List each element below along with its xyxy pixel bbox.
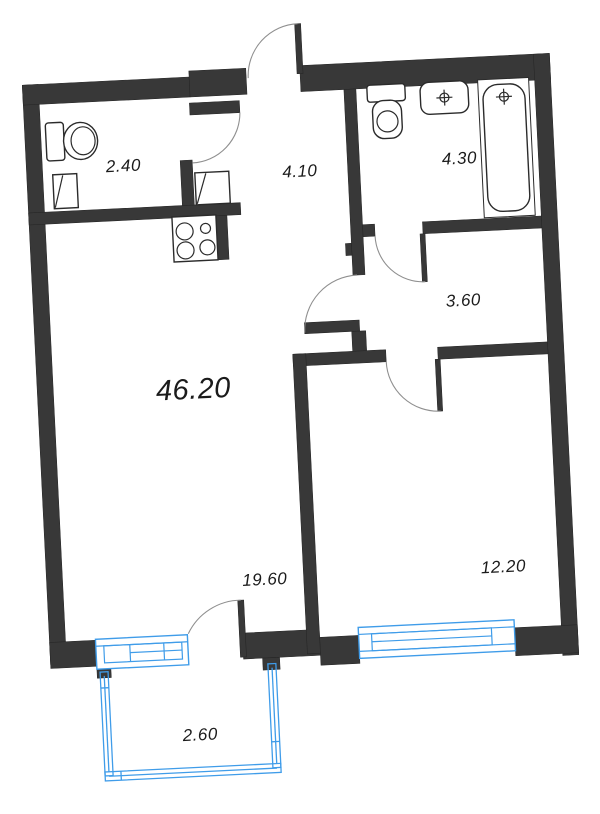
balcony-wall-right-inner bbox=[272, 668, 277, 764]
entrance-door-arc bbox=[246, 24, 300, 78]
area-label-balcony: 2.60 bbox=[182, 724, 218, 746]
area-label-corridor: 3.60 bbox=[445, 290, 481, 312]
entrance-door-leaf bbox=[295, 24, 303, 74]
wall-bedroom-divider bbox=[293, 354, 321, 654]
wall-corridor-stub bbox=[352, 331, 367, 352]
bathtub-inner bbox=[482, 83, 530, 212]
area-label-wc: 2.40 bbox=[105, 156, 141, 178]
floor-plan: 46.20 19.60 12.20 4.10 2.40 4.30 3.60 2.… bbox=[0, 0, 600, 814]
wc-door-leaf bbox=[189, 101, 240, 115]
door-leaves bbox=[186, 18, 454, 659]
bathroom-door-arc bbox=[375, 234, 425, 284]
balcony-door-arc bbox=[187, 600, 242, 634]
balcony-wall-bottom-inner bbox=[109, 768, 277, 776]
wall-bedroom-north-left bbox=[293, 350, 386, 367]
area-label-hallway: 4.10 bbox=[282, 161, 318, 183]
floor-plan-drawing bbox=[0, 0, 600, 814]
wall-bathroom-stub bbox=[363, 224, 376, 237]
area-label-total: 46.20 bbox=[155, 372, 232, 409]
wall-divider-nub bbox=[345, 243, 352, 255]
wall-bottom-bedroom-left bbox=[320, 635, 360, 665]
wall-bottom-bedroom-right bbox=[514, 625, 578, 656]
sink-drain-cross-v bbox=[444, 90, 445, 106]
wc-door-arc bbox=[190, 113, 242, 163]
toilet-bathroom bbox=[367, 84, 408, 140]
area-label-bedroom: 12.20 bbox=[480, 556, 526, 578]
bedroom-window-unit bbox=[358, 620, 515, 659]
wall-wc-east-stub bbox=[180, 160, 194, 206]
wall-bedroom-north-right bbox=[438, 342, 548, 359]
wall-top-mid bbox=[189, 68, 247, 97]
area-label-bathroom: 4.30 bbox=[441, 148, 477, 170]
vent-box-hall-outline bbox=[195, 171, 231, 205]
toilet-bathroom-tank bbox=[367, 84, 406, 103]
living-door-leaf bbox=[304, 320, 359, 334]
balcony-wall-left-inner bbox=[104, 676, 109, 772]
stove bbox=[172, 215, 218, 262]
balcony-walls bbox=[100, 663, 281, 780]
vent-box-hall bbox=[195, 171, 231, 205]
bedroom-door-leaf bbox=[435, 359, 443, 411]
wall-left bbox=[22, 84, 66, 664]
bedroom-door-arc bbox=[386, 359, 440, 413]
bathtub bbox=[478, 77, 536, 217]
balcony-door-leaf bbox=[238, 600, 247, 657]
area-label-kitchen-living: 19.60 bbox=[242, 569, 288, 591]
wall-bottom-living-left bbox=[50, 640, 97, 668]
wall-top-left bbox=[22, 77, 190, 105]
sink bbox=[420, 80, 470, 114]
toilet-wc bbox=[45, 121, 98, 161]
floor-plan-page: { "plan": { "type": "apartment-floor-pla… bbox=[0, 0, 600, 800]
living-window-unit bbox=[95, 635, 188, 669]
bathtub-drain-cross-v bbox=[504, 89, 505, 105]
bathroom-door-leaf bbox=[420, 234, 427, 282]
toilet-wc-tank bbox=[45, 122, 65, 161]
vent-box-wc bbox=[53, 174, 79, 209]
wall-bathroom-south bbox=[422, 216, 541, 234]
